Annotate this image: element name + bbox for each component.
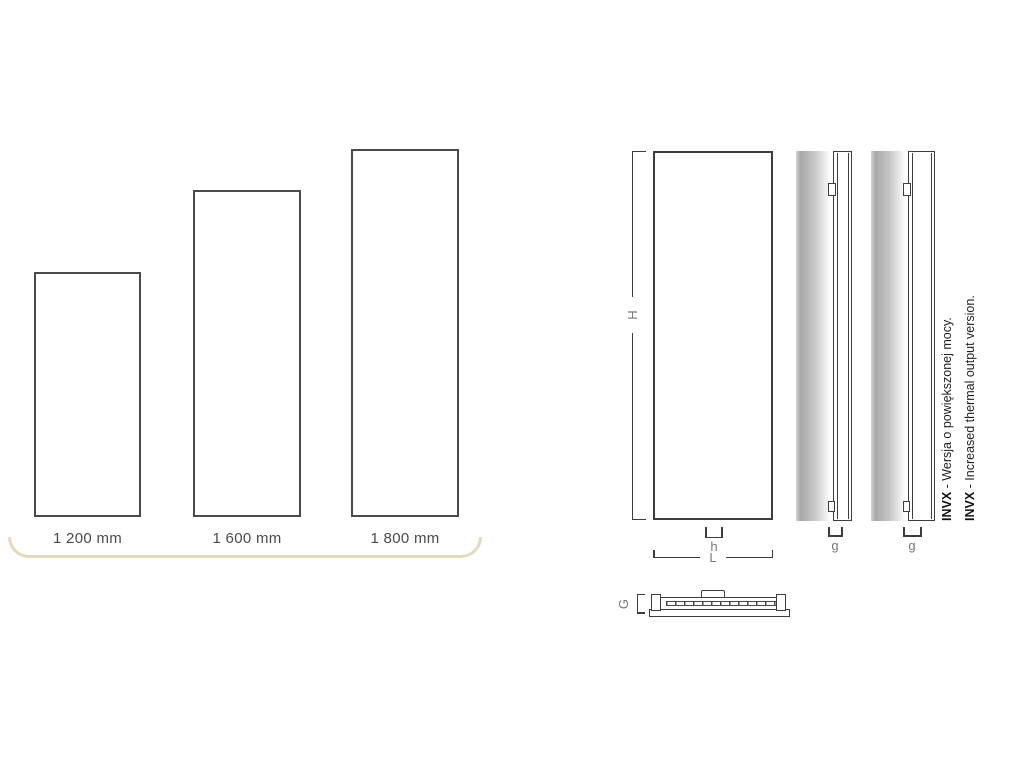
dimension-label-L: L [700, 551, 726, 564]
front-view-panel [653, 151, 773, 520]
g-section-bracket-line [637, 594, 639, 614]
note-invx-english-prefix: INVX [963, 492, 977, 521]
cross-section-end-cap-right [776, 594, 786, 611]
h-bracket-tick-top [632, 151, 646, 153]
note-invx-polish-prefix: INVX [940, 492, 954, 521]
h-small-bracket-bottom [705, 537, 723, 539]
cross-section-bottom-plate [649, 609, 790, 617]
size-rect-0 [34, 272, 141, 517]
side-view-1-inner-line-left [837, 153, 838, 519]
note-invx-polish-text: - Wersja o powiększonej mocy. [940, 317, 954, 492]
cross-section-end-cap-left [651, 594, 661, 611]
dimension-label-g-invx: g [901, 539, 923, 552]
wall-shading-1 [796, 151, 833, 521]
g1-bracket-bottom [828, 535, 843, 537]
g2-bracket-bottom [903, 535, 922, 537]
wall-shading-2 [871, 151, 908, 521]
decorative-arc [8, 537, 482, 558]
dimension-label-G: G [614, 593, 632, 615]
side-view-2-inner-line-right [931, 153, 932, 519]
mounting-clip-1-top [828, 183, 836, 196]
mounting-clip-2-bottom [903, 501, 910, 512]
g-section-bracket-tick-top [637, 594, 646, 596]
dimension-label-H: H [617, 302, 647, 328]
cross-section-slab [658, 597, 785, 610]
note-invx-polish: INVX - Wersja o powiększonej mocy. [940, 239, 956, 521]
mounting-clip-2-top [903, 183, 911, 196]
note-invx-english: INVX - Increased thermal output version. [963, 239, 979, 521]
g-section-bracket-tick-bottom [637, 612, 646, 614]
side-view-2-inner-line-left [912, 153, 913, 519]
h-bracket-tick-bottom [632, 519, 646, 521]
radiator-dimension-sheet: 1 200 mm 1 600 mm 1 800 mm H h L [0, 0, 1024, 768]
dimension-label-g-standard: g [824, 539, 846, 552]
h-bracket-line-bottom [632, 333, 634, 520]
note-invx-english-text: - Increased thermal output version. [963, 295, 977, 492]
l-bracket-line-left [653, 557, 700, 559]
cross-section-fins [666, 601, 777, 606]
size-rect-1 [193, 190, 301, 517]
size-rect-2 [351, 149, 459, 517]
l-bracket-line-right [726, 557, 773, 559]
h-bracket-line-top [632, 151, 634, 297]
side-view-1-inner-line-right [848, 153, 849, 519]
mounting-clip-1-bottom [828, 501, 835, 512]
